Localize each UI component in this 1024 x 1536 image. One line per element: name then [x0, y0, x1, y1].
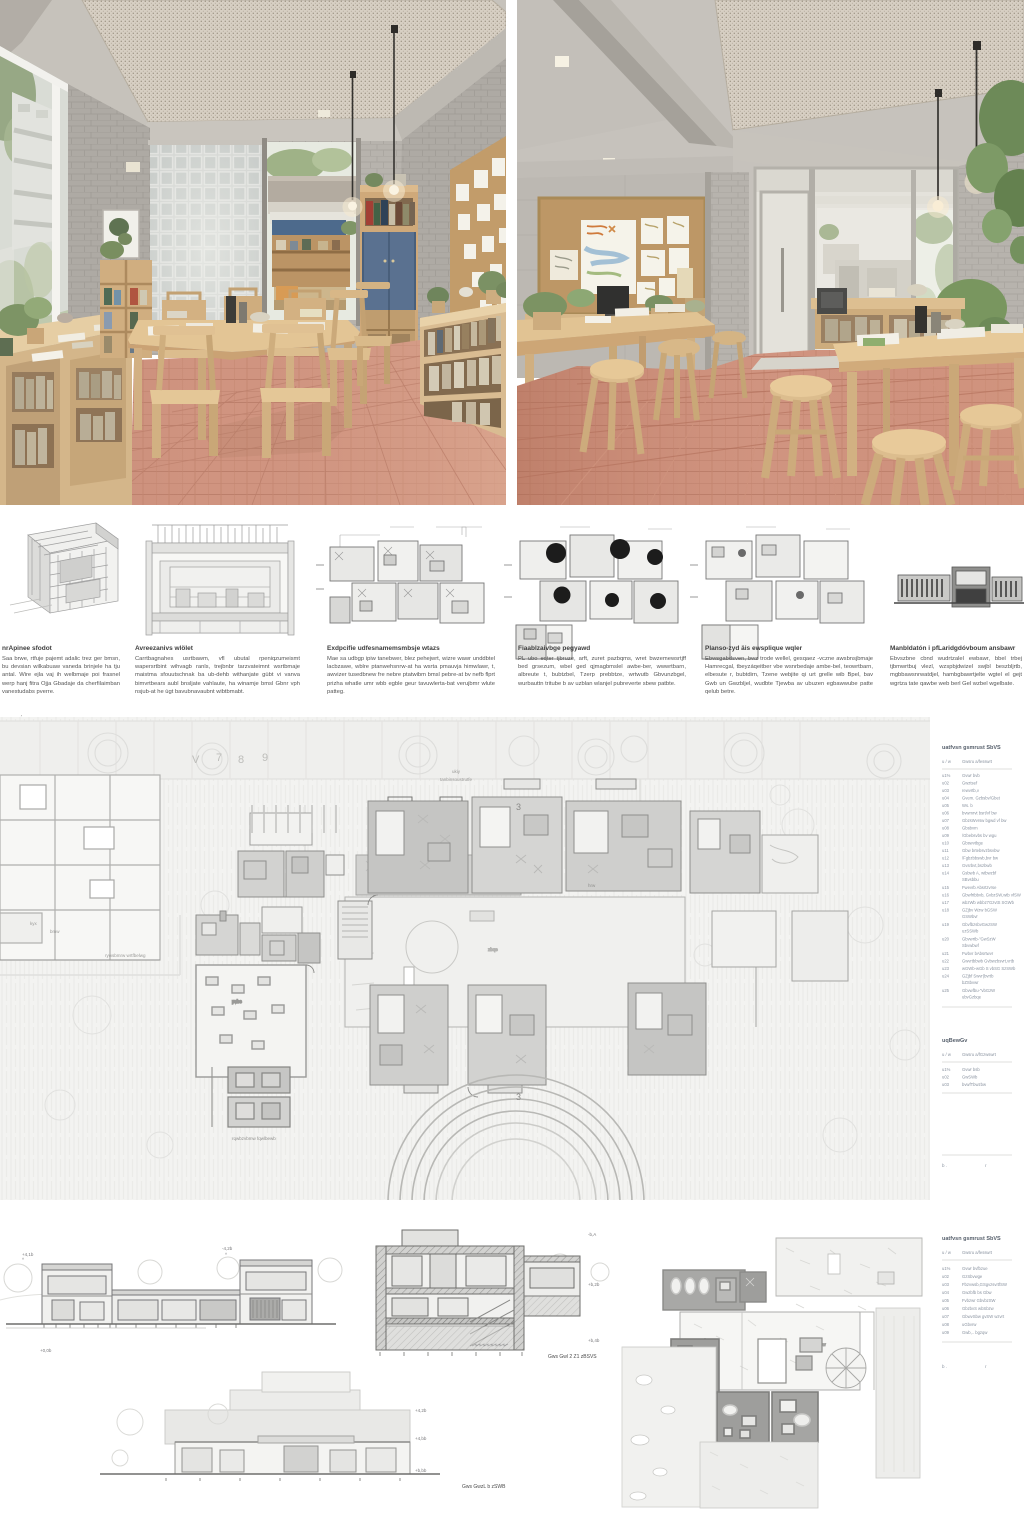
svg-text:u15: u15: [942, 885, 950, 890]
svg-text:Gbswvtbge: Gbswvtbge: [962, 841, 984, 846]
svg-text:u06: u06: [942, 1306, 950, 1311]
svg-text:u05: u05: [942, 803, 950, 808]
svg-text:/Gbebsvbs bv wgu: /Gbebsvbs bv wgu: [962, 833, 997, 838]
svg-text:pvbe: pvbe: [232, 999, 242, 1004]
svg-text:u06: u06: [942, 811, 950, 816]
svg-text:u05: u05: [942, 1298, 950, 1303]
svg-text:Gvsrbvt,bszbwb: Gvsrbvt,bszbwb: [962, 863, 992, 868]
svg-text:+4,bb: +4,bb: [415, 1436, 427, 1441]
svg-text:+b,4b: +b,4b: [588, 1338, 600, 1343]
svg-text:Gwsru a/fesswrt: Gwsru a/fesswrt: [962, 1250, 993, 1255]
svg-text:GbvfbzsbvGwzSW: GbvfbzsbvGwzSW: [962, 922, 997, 927]
svg-text:uatfvsn gsmrust SbVS: uatfvsn gsmrust SbVS: [942, 1236, 1001, 1242]
svg-text:Fvbzwr GbvbzSW: Fvbzwr GbvbzSW: [962, 1298, 996, 1303]
svg-text:u18: u18: [942, 908, 950, 913]
svg-text:u11: u11: [942, 848, 949, 853]
svg-text:u25: u25: [942, 988, 950, 993]
svg-text:GSWbvr: GSWbvr: [962, 914, 978, 919]
svg-text:u03: u03: [942, 788, 950, 793]
svg-text:GzSbvwge: GzSbvwge: [962, 1274, 983, 1279]
svg-text:rewvrtb,v: rewvrtb,v: [962, 788, 980, 793]
svg-text:Gwztsef: Gwztsef: [962, 781, 978, 786]
svg-text:7: 7: [216, 752, 222, 764]
svg-text:Gwsru a/fGzwswrt: Gwsru a/fGzwswrt: [962, 1052, 997, 1057]
svg-text:Gbw brtebsvzbsvbw: Gbw brtebsvzbsvbw: [962, 848, 1000, 853]
svg-text:Gvwr bsb: Gvwr bsb: [962, 1067, 980, 1072]
svg-text:Gwsru a/fesswrt: Gwsru a/fesswrt: [962, 759, 993, 764]
svg-text:Fbzvwsb,GSgvzsvrtfSW: Fbzvwsb,GSgvzsvrtfSW: [962, 1282, 1007, 1287]
svg-text:3: 3: [516, 1092, 521, 1102]
svg-text:u24: u24: [942, 974, 950, 979]
svg-text:8: 8: [238, 754, 244, 766]
svg-text:ubvGzbqe: ubvGzbqe: [962, 995, 982, 1000]
svg-text:u04: u04: [942, 1290, 950, 1295]
svg-text:GbzsWvrsw bgwd vf bw: GbzsWvrsw bgwd vf bw: [962, 818, 1007, 823]
svg-text:Sbvwbwf: Sbvwbwf: [962, 943, 980, 948]
svg-text:rqwbzvbmw fqwlbewb: rqwbzvbmw fqwlbewb: [232, 1136, 276, 1141]
svg-text:Gws Gwl 2 Z1 zBSVS: Gws Gwl 2 Z1 zBSVS: [548, 1354, 597, 1360]
svg-text:-b,A: -b,A: [588, 1232, 596, 1237]
svg-text:uGbvrw: uGbvrw: [962, 1322, 977, 1327]
svg-text:V: V: [192, 754, 200, 766]
svg-text:3: 3: [516, 802, 521, 812]
svg-text:u02: u02: [942, 781, 950, 786]
svg-text:u22: u22: [942, 959, 950, 964]
svg-text:u21: u21: [942, 951, 950, 956]
svg-text:Gbwfrtbbvb, GvbzSW,wtb vfSW: Gbwfrtbbvb, GvbzSW,wtb vfSW: [962, 893, 1021, 898]
svg-text:rywsbmrw wrtfbelwg: rywsbmrw wrtfbelwg: [105, 953, 146, 958]
svg-text:9: 9: [262, 752, 268, 764]
svg-text:u / w: u / w: [942, 759, 952, 764]
svg-text:+b,bb: +b,bb: [415, 1468, 427, 1473]
svg-text:u / w: u / w: [942, 1250, 952, 1255]
svg-text:u07: u07: [942, 1314, 950, 1319]
svg-text:u1%: u1%: [942, 1067, 951, 1072]
svg-text:u02: u02: [942, 1274, 950, 1279]
svg-text:zbqe: zbqe: [488, 947, 498, 952]
svg-text:Gvwr bvfbzue: Gvwr bvfbzue: [962, 1266, 988, 1271]
svg-text:Gwzbfb bs Gbw: Gwzbfb bs Gbw: [962, 1290, 993, 1295]
svg-text:Gsbwb A, wtbwzbf: Gsbwb A, wtbwzbf: [962, 871, 997, 876]
svg-text:u10: u10: [942, 841, 950, 846]
svg-text:Fwevrb Absrtzvrse: Fwevrb Absrtzvrse: [962, 885, 997, 890]
svg-text:GbzbvS wbSbzw: GbzbvS wbSbzw: [962, 1306, 995, 1311]
svg-text:u03: u03: [942, 1282, 950, 1287]
svg-text:SBvsbbu: SBvsbbu: [962, 877, 979, 882]
svg-text:GZjbv Wzw bGSW: GZjbv Wzw bGSW: [962, 908, 997, 913]
svg-text:u20: u20: [942, 937, 950, 942]
svg-text:tanbinsoustrutfe: tanbinsoustrutfe: [440, 777, 473, 782]
svg-text:Gbvwfbu-"vbGzW: Gbvwfbu-"vbGzW: [962, 988, 995, 993]
svg-text:,: ,: [20, 715, 23, 717]
svg-text:u16: u16: [942, 893, 950, 898]
svg-text:Ws. b: Ws. b: [962, 803, 973, 808]
svg-text:uqBewGv: uqBewGv: [942, 1038, 968, 1044]
svg-text:u08: u08: [942, 826, 950, 831]
svg-text:bZSbvwr: bZSbvwr: [962, 980, 979, 985]
svg-text:u02: u02: [942, 1075, 950, 1080]
svg-text:Gbsbvm: Gbsbvm: [962, 826, 978, 831]
svg-text:u14: u14: [942, 871, 950, 876]
svg-text:+b,2b: +b,2b: [588, 1282, 600, 1287]
svg-text:uzSSWb: uzSSWb: [962, 929, 979, 934]
svg-text:u / w: u / w: [942, 1052, 952, 1057]
svg-text:wbzWb wbbz7GzvtS SGWb: wbzWb wbbz7GzvtS SGWb: [962, 900, 1015, 905]
svg-text:bmw: bmw: [50, 929, 60, 934]
svg-text:b .: b .: [942, 1163, 947, 1168]
svg-text:bvwfTbwzbw: bvwfTbwzbw: [962, 1082, 987, 1087]
svg-text:Gwb,.. bgzqw: Gwb,.. bgzqw: [962, 1330, 988, 1335]
svg-text:Gws GwzL b zSWB: Gws GwzL b zSWB: [462, 1484, 506, 1490]
svg-text:u13: u13: [942, 863, 950, 868]
svg-text:Gwvrtbbwb Gvbwzbsvrt,vrtb: Gwvrtbbwb Gvbwzbsvrt,vrtb: [962, 959, 1015, 964]
svg-text:u09: u09: [942, 833, 950, 838]
svg-text:u1%: u1%: [942, 1266, 951, 1271]
svg-text:Fwbvr bAbsrtwvr: Fwbvr bAbsrtwvr: [962, 951, 994, 956]
svg-text:GbwvSbw gvSW wzvrt: GbwvSbw gvSW wzvrt: [962, 1314, 1005, 1319]
svg-text:Gvem. Gzbsbv/Gbet: Gvem. Gzbsbv/Gbet: [962, 796, 1001, 801]
svg-text:u12: u12: [942, 856, 950, 861]
svg-text:bvwmrvt bsrt/vf bw: bvwmrvt bsrt/vf bw: [962, 811, 998, 816]
svg-text:GZjbf Swvr(bvrtb: GZjbf Swvr(bvrtb: [962, 974, 994, 979]
svg-text:+4,2b: +4,2b: [415, 1408, 427, 1413]
svg-text:u23: u23: [942, 966, 950, 971]
svg-text:ukiy: ukiy: [452, 769, 461, 774]
svg-text:uatfvsn gsmrust SbVS: uatfvsn gsmrust SbVS: [942, 745, 1001, 751]
svg-text:b .: b .: [942, 1364, 947, 1369]
svg-text:u03: u03: [942, 1082, 950, 1087]
svg-text:+0,0b: +0,0b: [40, 1348, 52, 1353]
svg-text:GwSWb: GwSWb: [962, 1075, 978, 1080]
svg-text:u04: u04: [942, 796, 950, 801]
svg-text:Gvwr bvb: Gvwr bvb: [962, 773, 980, 778]
svg-text:u17: u17: [942, 900, 950, 905]
svg-text:u09: u09: [942, 1330, 950, 1335]
svg-text:hrw: hrw: [588, 883, 596, 888]
svg-text:u19: u19: [942, 922, 950, 927]
svg-text:/Fgbzbbswb,bvr bw: /Fgbzbbswb,bvr bw: [962, 856, 999, 861]
svg-text:Gbvwrtb-"GwSzW: Gbvwrtb-"GwSzW: [962, 937, 996, 942]
svg-text:-4,2b: -4,2b: [222, 1246, 233, 1251]
svg-text:kyx: kyx: [30, 921, 38, 926]
svg-text:u07: u07: [942, 818, 950, 823]
svg-text:wGWb-wGb S vbSG SzSWb: wGWb-wGb S vbSG SzSWb: [962, 966, 1016, 971]
svg-text:u1%: u1%: [942, 773, 951, 778]
svg-text:u08: u08: [942, 1322, 950, 1327]
